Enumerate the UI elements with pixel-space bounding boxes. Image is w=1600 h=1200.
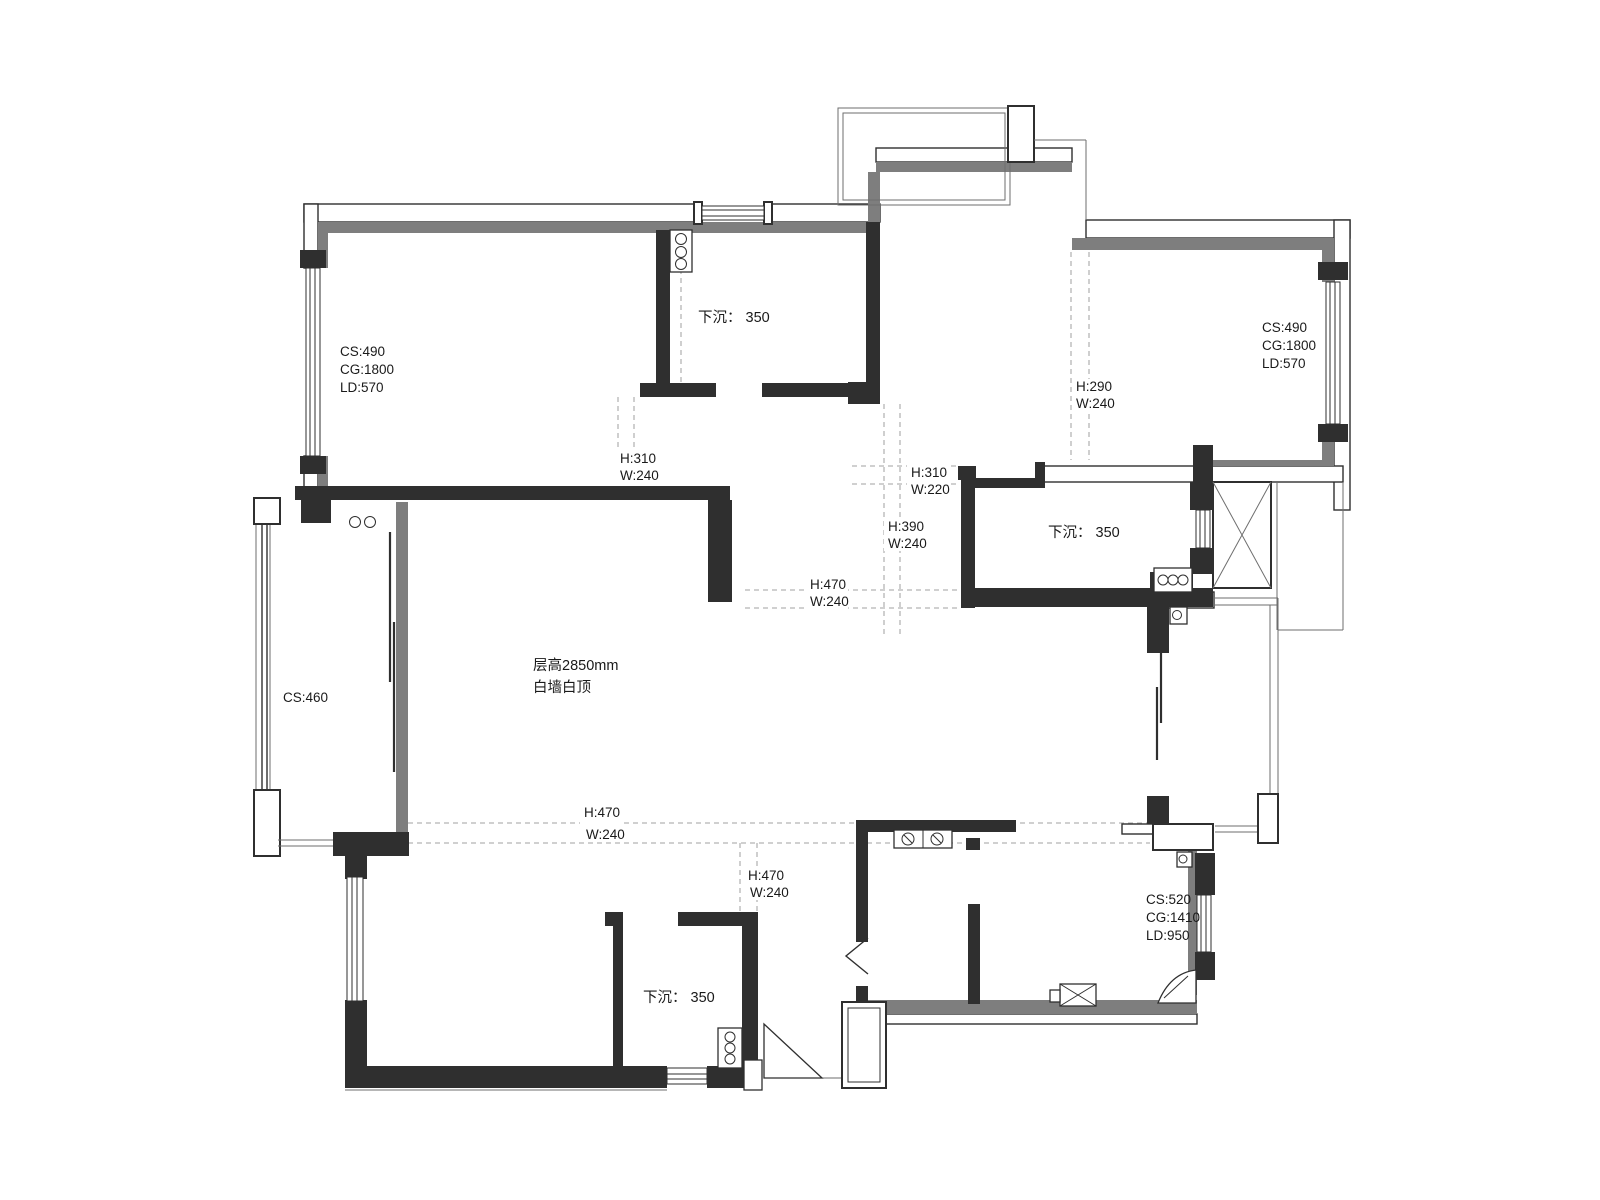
floor-plan-canvas: CS:490 CG:1800 LD:570 CS:490 CG:1800 LD:… (0, 0, 1600, 1200)
plumbing-counter-bottom-sunken (718, 1028, 742, 1068)
label-window-top-left-cs: CS:490 (340, 344, 385, 359)
entry-door-triangle (764, 1024, 822, 1078)
label-window-top-right-cg: CG:1800 (1262, 338, 1316, 353)
balcony-junction-block (1153, 824, 1213, 850)
washer-units (894, 830, 952, 848)
right-balcony-sliding-door (1157, 652, 1161, 760)
label-wall-finish: 白墙白顶 (533, 679, 591, 696)
top-step-block (1008, 106, 1034, 162)
label-window-top-left-cg: CG:1800 (340, 362, 394, 377)
window-top-right-room (1326, 282, 1340, 424)
plumbing-counter-top-sunken (670, 230, 692, 272)
label-beam-b4-w: W:240 (888, 536, 927, 551)
floor-plan-drawing: CS:490 CG:1800 LD:570 CS:490 CG:1800 LD:… (0, 0, 1600, 1200)
label-sunken-bottom: 下沉： 350 (643, 989, 715, 1006)
label-window-top-right-ld: LD:570 (1262, 356, 1306, 371)
left-balcony-sliding-door (390, 532, 394, 772)
label-beam-b5-w: W:240 (810, 594, 849, 609)
label-window-bottom-right-cs: CS:520 (1146, 892, 1191, 907)
door-swing-mark-bathroom (846, 938, 868, 974)
window-top-wall (694, 202, 772, 224)
label-window-bottom-right-cg: CG:1410 (1146, 910, 1200, 925)
window-mid-sunken-room (1196, 510, 1210, 548)
window-bottom-left-room-side (347, 877, 363, 1001)
right-balcony-post (1258, 794, 1278, 843)
label-sunken-top: 下沉： 350 (698, 309, 770, 326)
door-stop-balcony (1170, 607, 1187, 624)
corner-shower (1158, 970, 1196, 1003)
label-window-top-left-ld: LD:570 (340, 380, 384, 395)
beam-dashed-lines (408, 233, 1150, 912)
window-top-left-room (306, 268, 320, 456)
windows (306, 202, 1340, 1084)
label-left-balcony-cs: CS:460 (283, 690, 328, 705)
label-beam-b7-w: W:240 (750, 885, 789, 900)
label-beam-b5-h: H:470 (810, 577, 846, 592)
label-beam-b1-w: W:240 (620, 468, 659, 483)
label-sunken-mid: 下沉： 350 (1048, 524, 1120, 541)
label-beam-b2-w: W:240 (1076, 396, 1115, 411)
label-beam-b2-h: H:290 (1076, 379, 1112, 394)
label-window-bottom-right-ld: LD:950 (1146, 928, 1190, 943)
label-beam-b4-h: H:390 (888, 519, 924, 534)
fixtures (350, 230, 1197, 1090)
window-bottom-wall (667, 1068, 707, 1084)
label-beam-b6-h: H:470 (584, 805, 620, 820)
label-beam-b3-w: W:220 (911, 482, 950, 497)
door-hardware-left-balcony (350, 517, 376, 528)
label-window-top-right-cs: CS:490 (1262, 320, 1307, 335)
label-beam-b7-h: H:470 (748, 868, 784, 883)
label-beam-b1-h: H:310 (620, 451, 656, 466)
label-beam-b3-h: H:310 (911, 465, 947, 480)
door-stop-bathroom (1177, 852, 1192, 867)
label-beam-b6-w: W:240 (586, 827, 625, 842)
left-balcony-rail (278, 840, 333, 846)
sink-counter-mid-sunken (1154, 568, 1192, 592)
label-ceiling-height: 层高2850mm (533, 657, 618, 674)
